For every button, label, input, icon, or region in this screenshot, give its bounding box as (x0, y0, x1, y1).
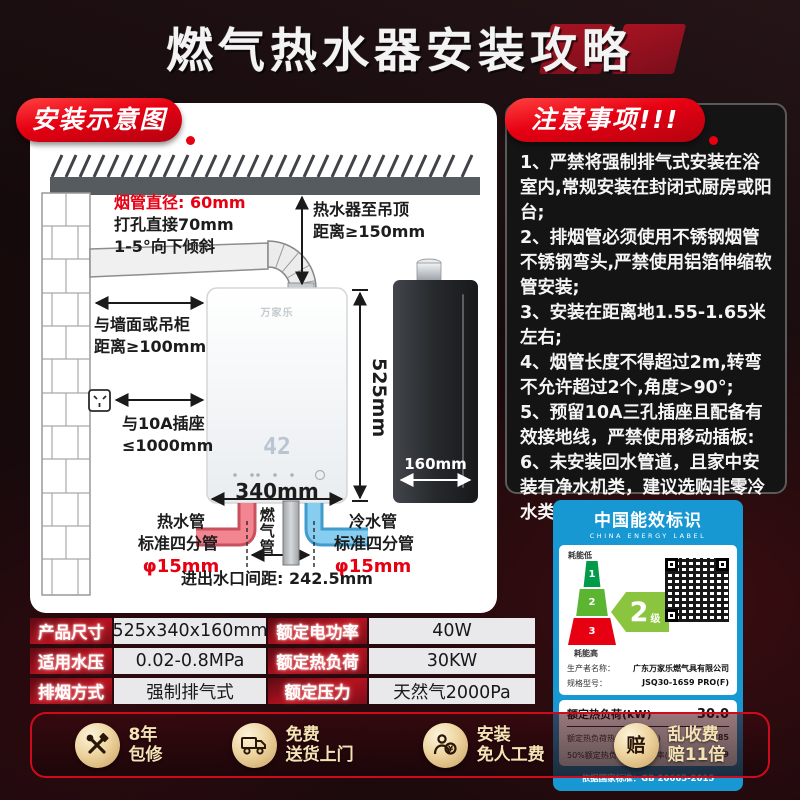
svg-text:¥: ¥ (448, 745, 454, 754)
compensation-icon: 赔 (614, 723, 659, 768)
spec-label-cell: 排烟方式 (30, 678, 112, 704)
flue-diameter-label: 烟管直径: 60mm (114, 193, 246, 213)
ceiling-distance-label-2: 距离≥150mm (313, 222, 425, 242)
socket-icon (89, 390, 110, 411)
energy-label-title: 中国能效标识 (553, 506, 743, 531)
model-value: JSQ30-16S9 PRO(F) (642, 678, 729, 689)
wall-distance-label-1: 与墙面或吊柜 (94, 315, 190, 335)
spec-value-cell: 天然气2000Pa (369, 678, 535, 704)
service-item-install: ¥ 安装 免人工费 (423, 723, 545, 768)
tilt-note-label: 1-5°向下倾斜 (114, 237, 215, 257)
hot-pipe-label-2: 标准四分管 (122, 534, 234, 554)
tools-icon (75, 723, 120, 768)
high-energy-label: 耗能高 (574, 648, 598, 659)
service-line: 包修 (129, 745, 163, 765)
service-line: 8年 (129, 725, 158, 745)
ceiling-distance-label-1: 热水器至吊顶 (313, 200, 409, 220)
energy-grade-arrow: 2 级 (611, 592, 669, 632)
socket-distance-label-2: ≤1000mm (122, 436, 213, 456)
notices-section-badge: 注意事项!!! (505, 98, 705, 142)
heater-logo: 万家乐 (207, 308, 347, 321)
service-item-compensation: 赔 乱收费 赔11倍 (614, 723, 726, 768)
depth-dimension-label: 160mm (393, 455, 478, 474)
cold-pipe-label-1: 冷水管 (330, 512, 416, 532)
ceiling-hatch (52, 155, 472, 177)
installation-diagram-panel: 万家乐 42 烟管直径: 60mm 打孔直接70mm 1-5°向下倾斜 热水器至… (30, 103, 497, 613)
gas-pipe-label: 燃气管 (257, 507, 276, 555)
spec-value-cell: 强制排气式 (114, 678, 266, 704)
socket-distance-label-1: 与10A插座 (122, 414, 205, 434)
brick-wall (42, 193, 90, 595)
service-line: 免费 (286, 725, 320, 745)
energy-grade-number: 2 (630, 599, 649, 626)
page: 燃气热水器安装攻略 安装示意图 注意事项!!! (0, 0, 800, 800)
service-line: 乱收费 (668, 725, 719, 745)
cold-pipe-label-2: 标准四分管 (318, 534, 430, 554)
energy-tier-3: 3 (568, 618, 616, 645)
producer-label: 生产者名称： (567, 663, 615, 674)
spec-label-cell: 额定电功率 (268, 618, 367, 644)
hole-note-label: 打孔直接70mm (114, 215, 234, 235)
flue-collar (417, 263, 441, 281)
spec-label-cell: 适用水压 (30, 648, 112, 674)
spec-label-cell: 产品尺寸 (30, 618, 112, 644)
service-item-delivery: 免费 送货上门 (232, 723, 354, 768)
service-line: 赔11倍 (668, 745, 726, 765)
spec-value-cell: 525x340x160mm (114, 618, 266, 644)
notices-panel: 1、严禁将强制排气式安装在浴室内,常规安装在封闭式厨房或阳台; 2、排烟管必须使… (505, 103, 787, 494)
port-spacing-label: 进出水口间距: 242.5mm (160, 569, 394, 589)
notice-item: 1、严禁将强制排气式安装在浴室内,常规安装在封闭式厨房或阳台; (520, 151, 773, 226)
service-line: 送货上门 (286, 745, 354, 765)
energy-label-title-en: CHINA ENERGY LABEL (553, 532, 743, 540)
spec-label-cell: 额定热负荷 (268, 648, 367, 674)
notice-item: 3、安装在距离地1.55-1.65米左右; (520, 301, 773, 351)
notice-item: 4、烟管长度不得超过2m,转弯不允许超过2个,角度>90°; (520, 351, 773, 401)
heater-display: 42 (207, 433, 347, 462)
width-dimension-label: 340mm (207, 479, 347, 504)
spec-label-cell: 额定压力 (268, 678, 367, 704)
qr-code (665, 558, 729, 622)
spec-table: 产品尺寸 525x340x160mm 额定电功率 40W 适用水压 0.02-0… (30, 618, 535, 704)
producer-value: 广东万家乐燃气具有限公司 (633, 663, 729, 674)
service-item-warranty: 8年 包修 (75, 723, 163, 768)
height-dimension-label: 525mm (366, 358, 390, 437)
installer-icon: ¥ (423, 723, 468, 768)
svg-text:赔: 赔 (627, 734, 646, 757)
energy-grade-suffix: 级 (650, 610, 660, 625)
spec-value-cell: 30KW (369, 648, 535, 674)
service-line: 安装 (477, 725, 511, 745)
energy-tier-2: 2 (574, 589, 610, 616)
services-bar: 8年 包修 免费 送货上门 ¥ 安装 免人工费 赔 (30, 712, 770, 778)
truck-icon (232, 723, 277, 768)
service-line: 免人工费 (477, 745, 545, 765)
energy-tier-1: 1 (578, 561, 606, 587)
spec-value-cell: 40W (369, 618, 535, 644)
gas-pipe (283, 501, 299, 565)
hot-pipe-label-1: 热水管 (138, 512, 224, 532)
model-label: 规格型号： (567, 678, 607, 689)
low-energy-label: 耗能低 (568, 550, 592, 561)
spec-value-cell: 0.02-0.8MPa (114, 648, 266, 674)
notice-item: 2、排烟管必须使用不锈钢烟管不锈钢弯头,严禁使用铝箔伸缩软管安装; (520, 226, 773, 301)
diagram-section-badge: 安装示意图 (16, 98, 182, 142)
page-title: 燃气热水器安装攻略 (0, 12, 800, 81)
notice-item: 5、预留10A三孔插座且配备有效接地线，严禁使用移动插板: (520, 401, 773, 451)
wall-distance-label-2: 距离≥100mm (94, 337, 206, 357)
